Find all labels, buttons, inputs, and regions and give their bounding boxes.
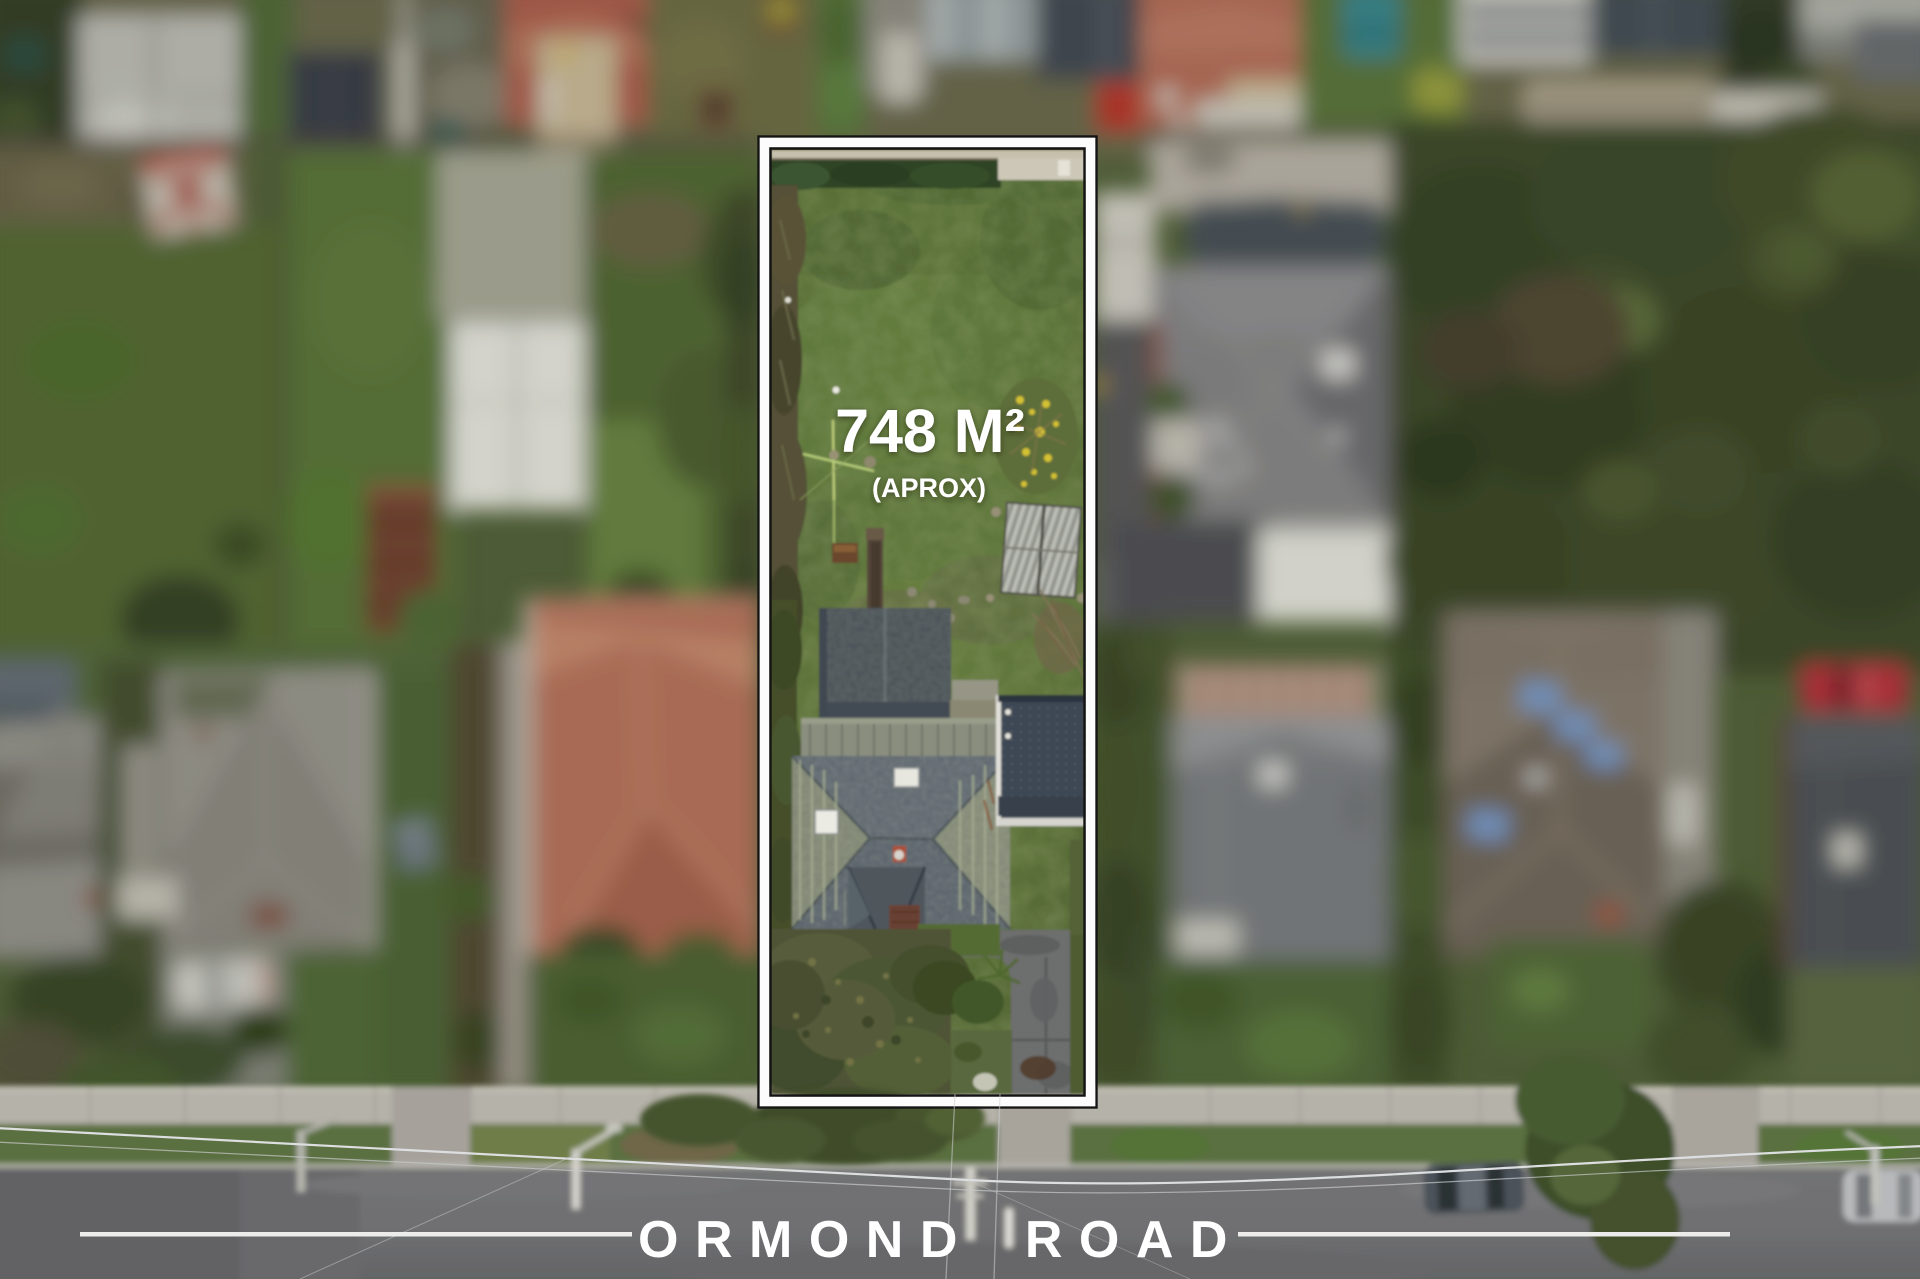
svg-text:(APROX): (APROX) (872, 473, 986, 503)
svg-text:ORMOND ROAD: ORMOND ROAD (638, 1211, 1244, 1269)
svg-text:748 M²: 748 M² (835, 397, 1025, 465)
